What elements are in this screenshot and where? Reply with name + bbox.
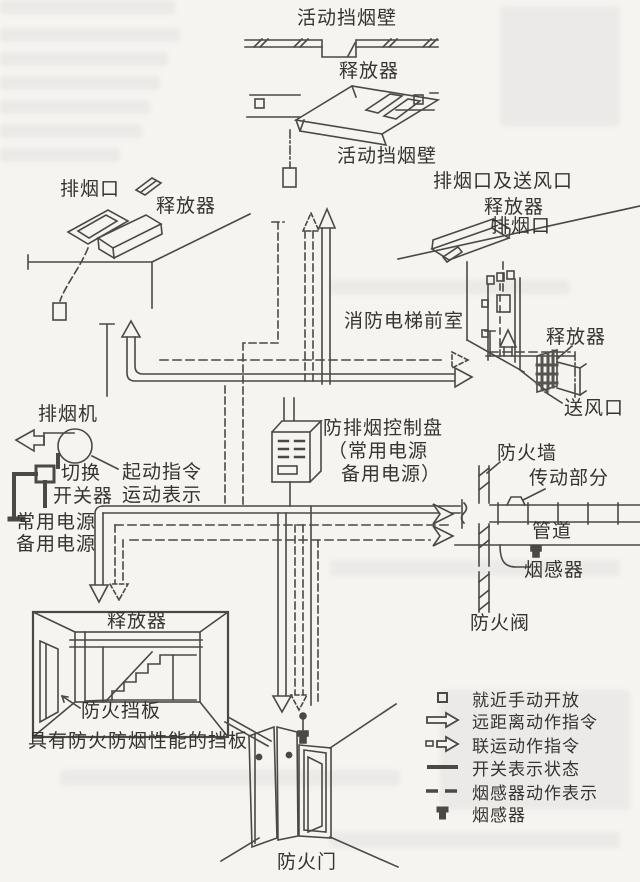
- label-duct: 管道: [532, 521, 572, 542]
- legend-item-switch-state: 开关表示状态: [424, 756, 580, 778]
- control-panel: [272, 398, 321, 506]
- legend-item-smoke-detector: 烟感器: [424, 802, 526, 824]
- left-riser-up-arrow: [100, 321, 472, 396]
- legend-item-remote-command: 远距离动作指令: [424, 709, 598, 731]
- fire-door-branch: [273, 506, 318, 712]
- label-fire-door: 防火门: [277, 852, 337, 873]
- label-movable-smoke-barrier-top: 活动挡烟壁: [297, 8, 397, 29]
- releaser-barrier-assembly: [247, 86, 438, 187]
- solid-line-icon: [424, 758, 462, 776]
- dashed-hollow-arrow-icon: [424, 735, 462, 753]
- legend-item-detector-action: 烟感器动作表示: [424, 780, 598, 802]
- label-start-command: 起动指令: [122, 462, 202, 483]
- label-smoke-exhaust-fan: 排烟机: [38, 404, 98, 425]
- label-control-panel-2: （常用电源: [328, 441, 428, 462]
- label-changeover-switch-1: 切换: [61, 463, 101, 484]
- legend-item-linked-command: 联运动作指令: [424, 733, 580, 755]
- supply-grille-assembly: [537, 346, 586, 403]
- fire-door-drawing: [221, 704, 398, 867]
- label-normal-power: 常用电源: [16, 512, 96, 533]
- legend-item-manual-open: 就近手动开放: [424, 687, 580, 709]
- label-fire-damper-valve: 防火阀: [470, 613, 530, 634]
- scanned-diagram-page: 活动挡烟壁 释放器 活动挡烟壁 排烟口 释放器 排烟口及送风口 释放器 排烟口 …: [0, 0, 640, 882]
- label-releaser-far-right: 释放器: [546, 327, 606, 348]
- label-fire-baffle: 防火挡板: [81, 701, 161, 722]
- ceiling-with-barrier-slot: [245, 39, 438, 57]
- label-releaser-top: 释放器: [339, 61, 399, 82]
- smoke-detector-icon: [424, 804, 462, 822]
- label-fire-elevator-lobby: 消防电梯前室: [344, 311, 464, 332]
- label-releaser-left: 释放器: [156, 196, 216, 217]
- label-air-supply-vent: 送风口: [564, 398, 624, 419]
- label-smoke-vent-right: 排烟口: [491, 216, 551, 237]
- label-control-panel-1: 防排烟控制盘: [323, 418, 443, 439]
- label-fire-smoke-baffle-caption: 具有防火防烟性能的挡板: [28, 731, 248, 752]
- label-transmission-part: 传动部分: [529, 468, 609, 489]
- label-smoke-detector-on-duct: 烟感器: [524, 560, 584, 581]
- dashed-line-icon: [424, 782, 462, 800]
- manual-open-square-icon: [424, 689, 462, 707]
- label-smoke-vent-left: 排烟口: [60, 179, 120, 200]
- central-shaft: [303, 209, 335, 384]
- solid-hollow-arrow-icon: [424, 711, 462, 729]
- label-smoke-and-supply-vent: 排烟口及送风口: [433, 171, 573, 192]
- label-changeover-switch-2: 开关器: [53, 486, 113, 507]
- label-fire-wall: 防火墙: [497, 443, 557, 464]
- label-releaser-room: 释放器: [107, 611, 167, 632]
- label-movable-smoke-barrier-mid: 活动挡烟壁: [337, 146, 437, 167]
- label-motion-indication: 运动表示: [122, 485, 202, 506]
- label-backup-power: 备用电源: [16, 534, 96, 555]
- label-control-panel-3: 备用电源）: [341, 464, 441, 485]
